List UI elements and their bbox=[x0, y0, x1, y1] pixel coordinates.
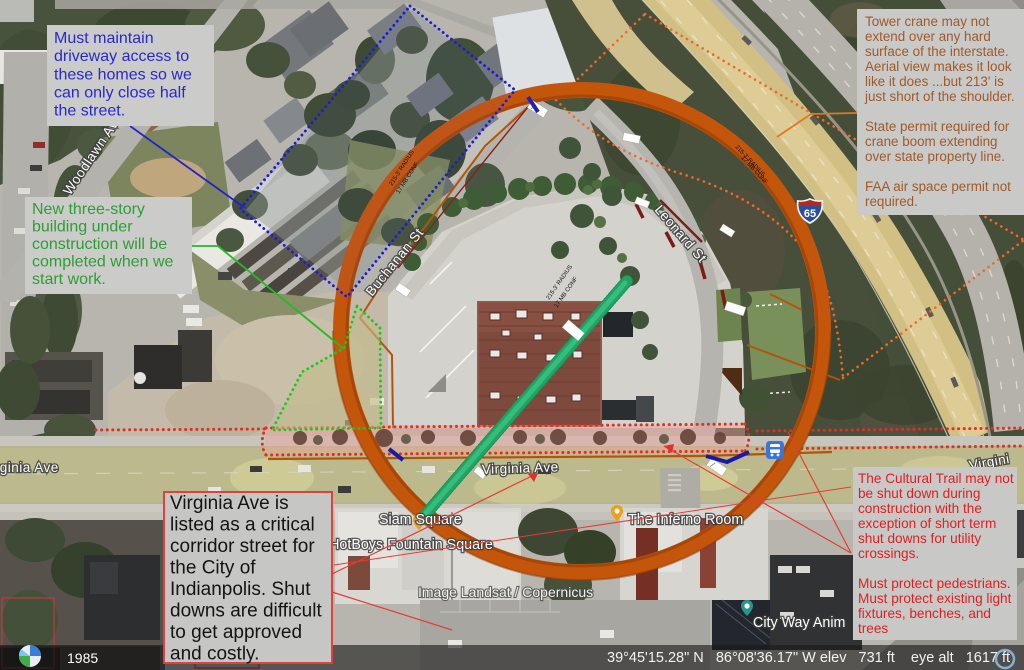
svg-text:just short of the shoulder.: just short of the shoulder. bbox=[864, 89, 1015, 104]
svg-text:Tower crane may not: Tower crane may not bbox=[865, 14, 990, 29]
svg-text:building under: building under bbox=[32, 219, 133, 236]
svg-text:FAA air space permit not: FAA air space permit not bbox=[865, 179, 1011, 194]
svg-text:New three-story: New three-story bbox=[32, 201, 145, 218]
svg-text:65: 65 bbox=[804, 208, 816, 220]
svg-text:extend over any hard: extend over any hard bbox=[865, 29, 991, 44]
svg-text:Aerial view makes it look: Aerial view makes it look bbox=[865, 59, 1012, 74]
svg-text:can only close half: can only close half bbox=[54, 85, 186, 102]
svg-text:Virginia Ave: Virginia Ave bbox=[482, 459, 559, 477]
svg-text:City Way Anim: City Way Anim bbox=[753, 615, 845, 631]
svg-text:and costly.: and costly. bbox=[170, 644, 259, 665]
svg-text:like it does ...but 213' is: like it does ...but 213' is bbox=[865, 74, 1004, 89]
svg-text:The Inferno Room: The Inferno Room bbox=[628, 512, 743, 528]
svg-text:driveway access to: driveway access to bbox=[54, 48, 189, 65]
svg-text:downs are difficult: downs are difficult bbox=[170, 601, 322, 622]
svg-text:Virginia Ave is: Virginia Ave is bbox=[170, 493, 289, 514]
svg-text:Must protect pedestrians.: Must protect pedestrians. bbox=[858, 576, 1011, 591]
svg-text:listed as a critical: listed as a critical bbox=[170, 515, 315, 536]
svg-text:to get approved: to get approved bbox=[170, 622, 302, 643]
svg-text:surface of the interstate.: surface of the interstate. bbox=[865, 44, 1009, 59]
svg-text:crossings.: crossings. bbox=[858, 546, 919, 561]
svg-text:Must protect existing light: Must protect existing light bbox=[858, 591, 1012, 606]
svg-text:Image Landsat / Copernicus: Image Landsat / Copernicus bbox=[418, 584, 593, 600]
svg-text:Indianpolis. Shut: Indianpolis. Shut bbox=[170, 579, 311, 600]
svg-text:crane boom extending: crane boom extending bbox=[865, 134, 998, 149]
svg-text:39°45'15.28" N 86°08'36.17": 39°45'15.28" N 86°08'36.17" W elev 731 f… bbox=[607, 650, 1010, 666]
svg-text:these homes so we: these homes so we bbox=[54, 67, 192, 84]
svg-text:the City of: the City of bbox=[170, 558, 256, 579]
svg-text:required.: required. bbox=[865, 194, 918, 209]
svg-text:over state property line.: over state property line. bbox=[865, 149, 1005, 164]
svg-text:Virginia Ave: Virginia Ave bbox=[0, 460, 59, 475]
svg-text:start work.: start work. bbox=[32, 271, 106, 288]
svg-text:The Cultural Trail may not: The Cultural Trail may not bbox=[858, 471, 1014, 486]
svg-text:be shut down during: be shut down during bbox=[858, 486, 980, 501]
svg-text:the street.: the street. bbox=[54, 103, 125, 120]
svg-text:1985: 1985 bbox=[67, 650, 98, 666]
svg-text:Must maintain: Must maintain bbox=[54, 30, 154, 47]
svg-text:completed when we: completed when we bbox=[32, 254, 174, 271]
svg-text:construction with the: construction with the bbox=[858, 501, 982, 516]
svg-text:construction will be: construction will be bbox=[32, 236, 167, 253]
svg-text:Siam Square: Siam Square bbox=[379, 512, 462, 528]
svg-text:fixtures, benches, and: fixtures, benches, and bbox=[858, 606, 991, 621]
svg-text:State permit required for: State permit required for bbox=[865, 119, 1010, 134]
svg-text:shut downs for utility: shut downs for utility bbox=[858, 531, 981, 546]
svg-text:corridor street for: corridor street for bbox=[170, 536, 315, 557]
svg-text:trees: trees bbox=[858, 621, 888, 636]
svg-text:exception of short term: exception of short term bbox=[858, 516, 996, 531]
